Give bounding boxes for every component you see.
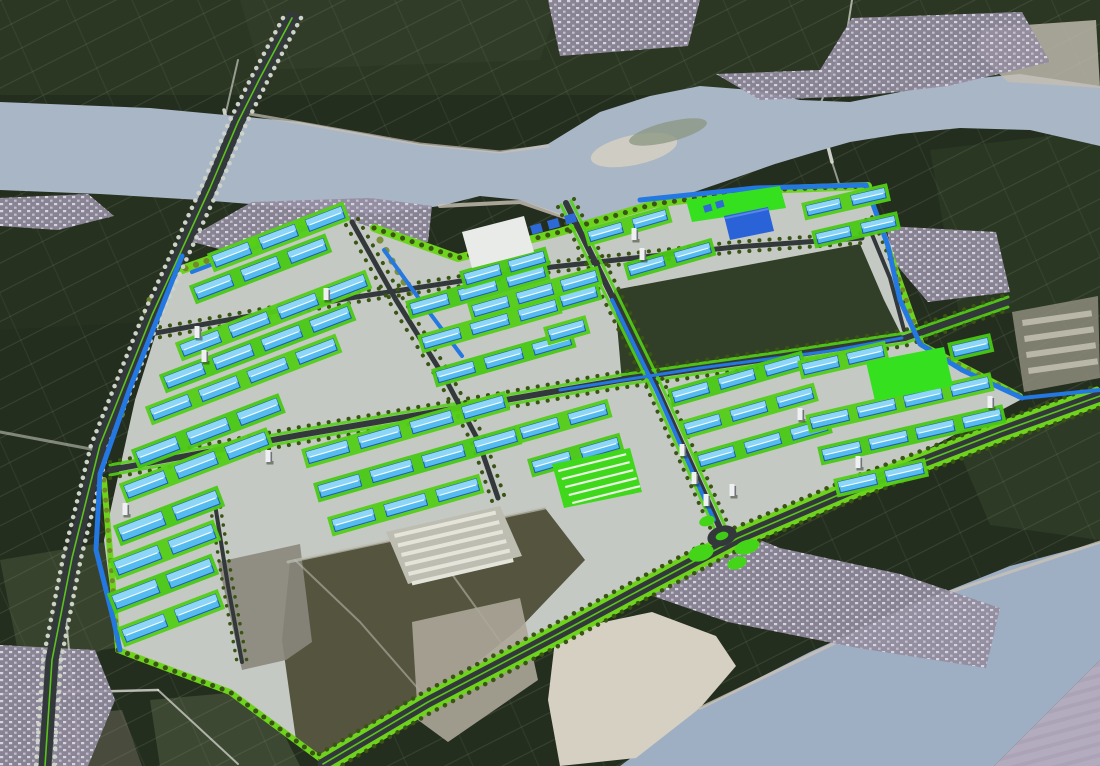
aerial-rendering-svg bbox=[0, 0, 1100, 766]
masterplan-image bbox=[0, 0, 1100, 766]
